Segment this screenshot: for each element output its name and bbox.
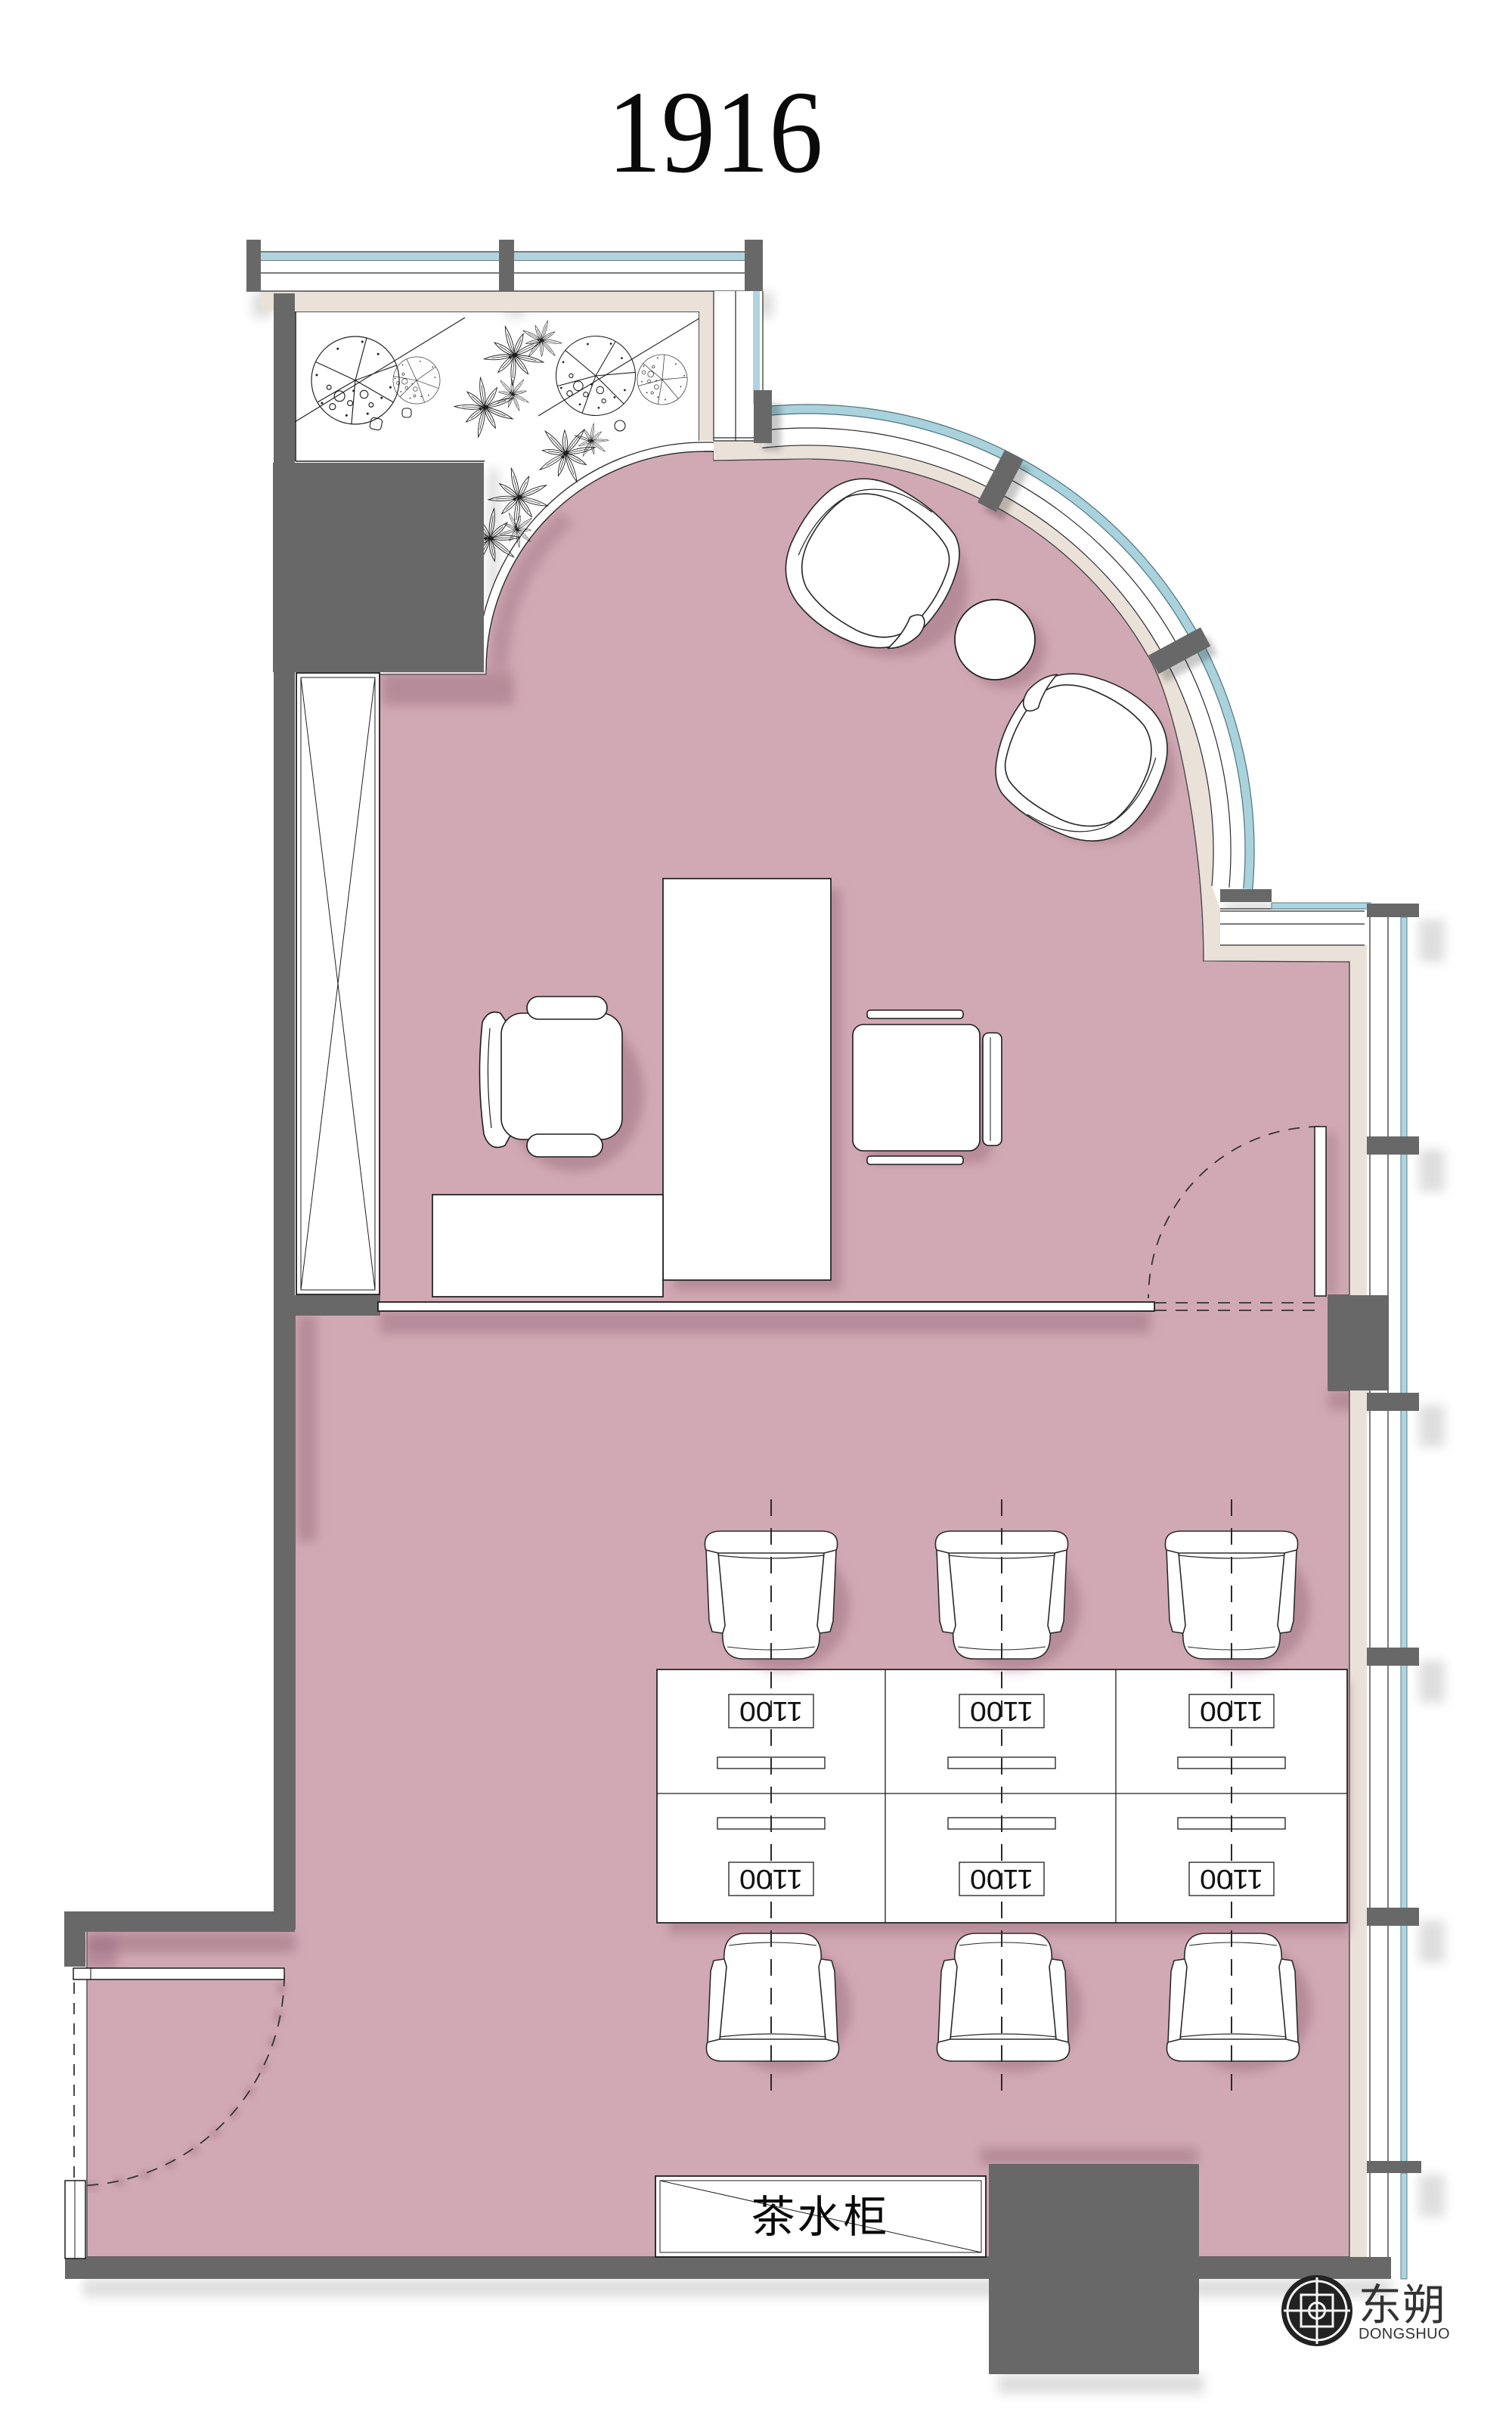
svg-text:DONGSHUO: DONGSHUO [1359, 2326, 1450, 2342]
svg-text:东朔: 东朔 [1359, 2281, 1446, 2330]
svg-text:1916: 1916 [608, 67, 823, 197]
svg-text:茶水柜: 茶水柜 [751, 2193, 889, 2242]
